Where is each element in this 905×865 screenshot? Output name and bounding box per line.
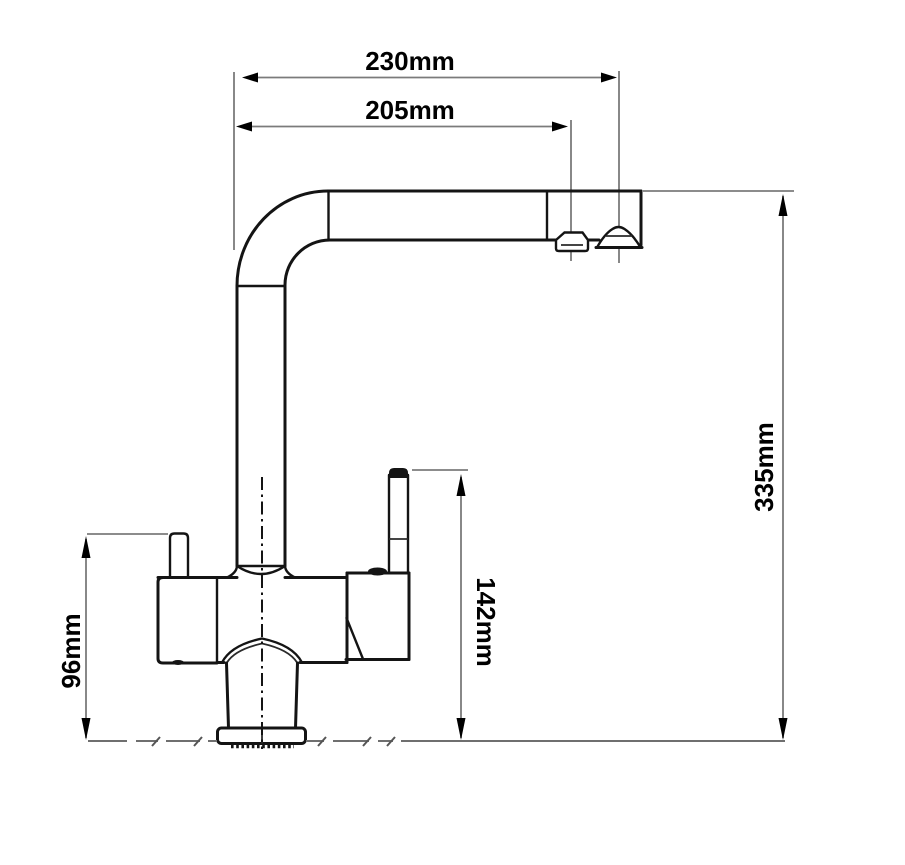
- dim-label-230: 230mm: [365, 46, 455, 76]
- right-handle-pivot-bump: [368, 568, 387, 576]
- elbow-inner-curve: [285, 240, 330, 285]
- right-handle-body-diagonal: [347, 618, 364, 659]
- base-column-right-edge: [296, 663, 298, 728]
- arrowhead-142-bottom: [457, 718, 466, 740]
- arrowhead-230-right: [601, 73, 617, 83]
- right-handle: [346, 468, 409, 660]
- faucet-dimension-drawing: 230mm 205mm 335mm 142mm 96mm: [0, 0, 905, 865]
- arrowhead-96-bottom: [82, 718, 91, 740]
- arrowhead-205-right: [552, 122, 568, 132]
- riser-base-flare-right: [285, 566, 295, 578]
- mixer-body: [158, 477, 347, 749]
- base-column-left-edge: [227, 663, 229, 728]
- left-handle-screw-dot: [172, 660, 184, 665]
- dim-label-205: 205mm: [365, 95, 455, 125]
- right-handle-lever-edges: [389, 475, 408, 573]
- elbow-outer-curve: [237, 191, 328, 286]
- technical-drawing-canvas: 230mm 205mm 335mm 142mm 96mm: [0, 0, 905, 865]
- arrowhead-142-top: [457, 474, 466, 496]
- arrowhead-96-top: [82, 536, 91, 558]
- dim-label-96: 96mm: [56, 613, 86, 688]
- spout: [328, 191, 642, 251]
- right-handle-lever-cap: [389, 468, 408, 478]
- aerator-right-dome: [597, 227, 641, 248]
- aerator-left-dome: [556, 233, 588, 252]
- dim-label-142: 142mm: [471, 577, 501, 667]
- dim-label-335: 335mm: [749, 422, 779, 512]
- spout-elbow: [237, 191, 330, 286]
- left-handle-body: [158, 578, 217, 664]
- dimension-lines: [86, 71, 794, 738]
- left-handle-lever: [170, 534, 188, 577]
- arrowhead-335-bottom: [779, 718, 788, 740]
- dimension-arrowheads: [82, 73, 788, 741]
- arrowhead-230-left: [242, 73, 258, 83]
- left-handle: [158, 534, 217, 666]
- dimension-labels: 230mm 205mm 335mm 142mm 96mm: [56, 46, 779, 689]
- riser-base-flare-left: [227, 566, 237, 578]
- faucet-outline: [158, 191, 642, 749]
- arrowhead-335-top: [779, 194, 788, 216]
- counter-surface-line: [88, 737, 785, 746]
- arrowhead-205-left: [236, 122, 252, 132]
